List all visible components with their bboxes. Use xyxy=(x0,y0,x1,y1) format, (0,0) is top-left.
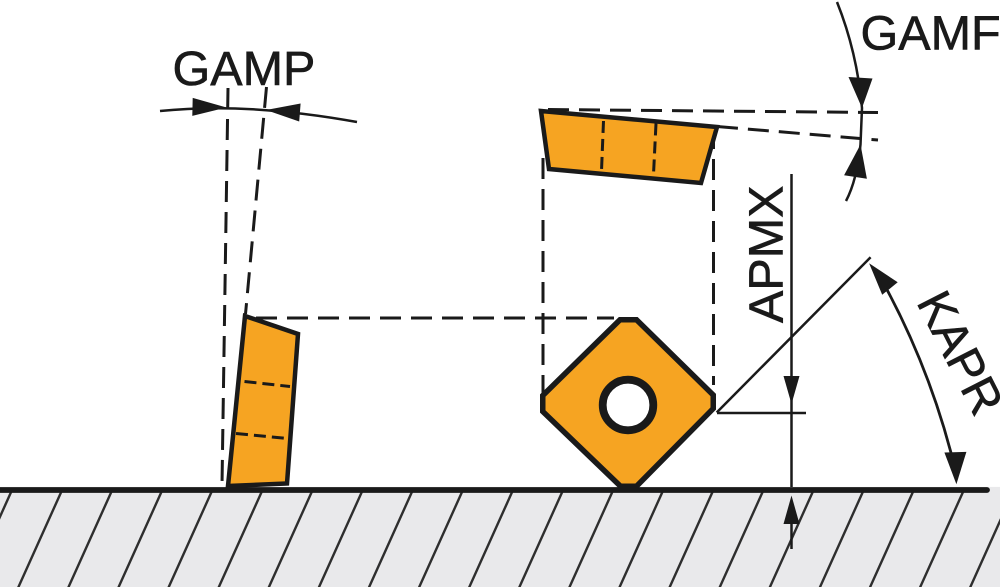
svg-text:GAMF: GAMF xyxy=(861,7,1000,61)
svg-text:APMX: APMX xyxy=(740,186,794,323)
svg-text:GAMP: GAMP xyxy=(173,42,316,96)
